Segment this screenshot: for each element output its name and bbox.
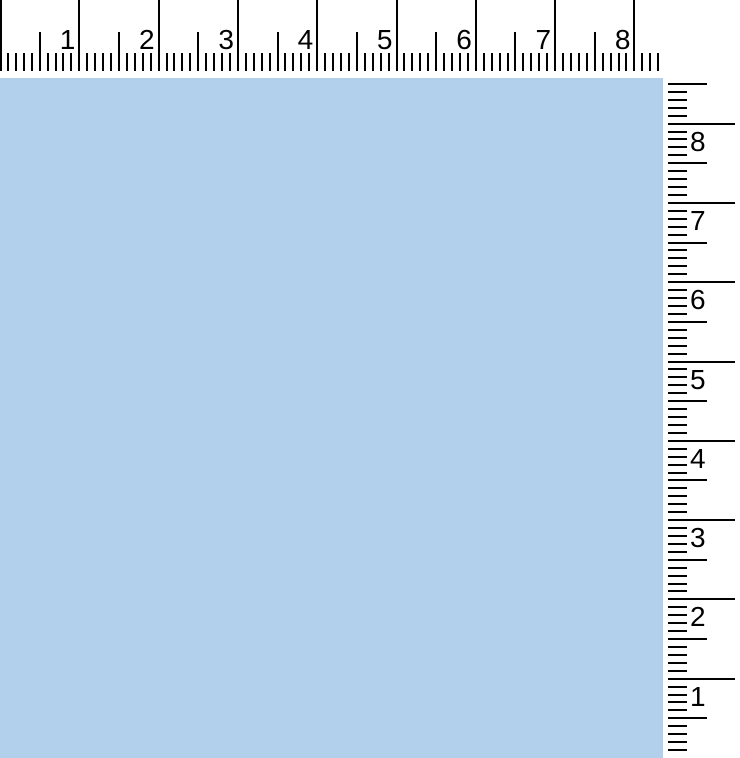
inch-tick-mark [668, 440, 735, 442]
minor-tick-mark [134, 53, 136, 71]
minor-tick-mark [55, 53, 57, 71]
minor-tick-mark [110, 53, 112, 71]
minor-tick-mark [530, 53, 532, 71]
minor-tick-mark [668, 472, 687, 474]
minor-tick-mark [419, 53, 421, 71]
minor-tick-mark [668, 99, 687, 101]
minor-tick-mark [668, 670, 687, 672]
minor-tick-mark [668, 511, 687, 513]
horizontal-ruler-number: 1 [60, 26, 76, 54]
minor-tick-mark [546, 53, 548, 71]
minor-tick-mark [459, 53, 461, 71]
inch-tick-mark [668, 361, 735, 363]
minor-tick-mark [668, 368, 687, 370]
minor-tick-mark [7, 53, 9, 71]
minor-tick-mark [668, 614, 687, 616]
minor-tick-mark [181, 53, 183, 71]
canvas-area[interactable] [0, 78, 663, 758]
vertical-ruler[interactable]: 12345678 [663, 78, 740, 758]
minor-tick-mark [15, 53, 17, 71]
inch-tick-mark [237, 0, 239, 71]
vertical-ruler-number: 5 [690, 366, 706, 394]
half-tick-mark [668, 638, 707, 640]
minor-tick-mark [150, 53, 152, 71]
minor-tick-mark [284, 53, 286, 71]
minor-tick-mark [443, 53, 445, 71]
minor-tick-mark [380, 53, 382, 71]
minor-tick-mark [668, 353, 687, 355]
minor-tick-mark [668, 741, 687, 743]
minor-tick-mark [348, 53, 350, 71]
vertical-ruler-number: 7 [690, 207, 706, 235]
minor-tick-mark [668, 701, 687, 703]
half-tick-mark [668, 321, 707, 323]
minor-tick-mark [649, 53, 651, 71]
minor-tick-mark [668, 376, 687, 378]
minor-tick-mark [668, 416, 687, 418]
minor-tick-mark [668, 733, 687, 735]
minor-tick-mark [668, 535, 687, 537]
vertical-ruler-number: 1 [690, 683, 706, 711]
minor-tick-mark [245, 53, 247, 71]
minor-tick-mark [324, 53, 326, 71]
inch-tick-mark [633, 0, 635, 71]
horizontal-ruler-number: 3 [218, 26, 234, 54]
minor-tick-mark [166, 53, 168, 71]
minor-tick-mark [668, 337, 687, 339]
minor-tick-mark [668, 543, 687, 545]
minor-tick-mark [62, 53, 64, 71]
minor-tick-mark [300, 53, 302, 71]
minor-tick-mark [668, 567, 687, 569]
minor-tick-mark [668, 249, 687, 251]
minor-tick-mark [411, 53, 413, 71]
minor-tick-mark [668, 432, 687, 434]
minor-tick-mark [668, 749, 687, 751]
minor-tick-mark [538, 53, 540, 71]
minor-tick-mark [491, 53, 493, 71]
minor-tick-mark [668, 313, 687, 315]
minor-tick-mark [668, 154, 687, 156]
minor-tick-mark [570, 53, 572, 71]
inch-tick-mark [668, 202, 735, 204]
minor-tick-mark [102, 53, 104, 71]
minor-tick-mark [668, 210, 687, 212]
minor-tick-mark [668, 107, 687, 109]
minor-tick-mark [668, 226, 687, 228]
minor-tick-mark [668, 487, 687, 489]
minor-tick-mark [94, 53, 96, 71]
minor-tick-mark [668, 218, 687, 220]
minor-tick-mark [668, 575, 687, 577]
half-tick-mark [277, 32, 279, 71]
minor-tick-mark [86, 53, 88, 71]
minor-tick-mark [668, 464, 687, 466]
minor-tick-mark [189, 53, 191, 71]
horizontal-ruler-number: 5 [377, 26, 393, 54]
minor-tick-mark [668, 448, 687, 450]
half-tick-mark [594, 32, 596, 71]
minor-tick-mark [364, 53, 366, 71]
half-tick-mark [668, 400, 707, 402]
minor-tick-mark [668, 384, 687, 386]
minor-tick-mark [668, 686, 687, 688]
minor-tick-mark [668, 289, 687, 291]
minor-tick-mark [142, 53, 144, 71]
horizontal-ruler-number: 2 [139, 26, 155, 54]
minor-tick-mark [292, 53, 294, 71]
horizontal-ruler[interactable]: 12345678 [0, 0, 740, 78]
half-tick-mark [668, 479, 707, 481]
minor-tick-mark [668, 694, 687, 696]
minor-tick-mark [70, 53, 72, 71]
vertical-ruler-number: 8 [690, 128, 706, 156]
minor-tick-mark [668, 590, 687, 592]
minor-tick-mark [668, 146, 687, 148]
horizontal-ruler-number: 7 [536, 26, 552, 54]
half-tick-mark [435, 32, 437, 71]
minor-tick-mark [668, 709, 687, 711]
minor-tick-mark [173, 53, 175, 71]
minor-tick-mark [340, 53, 342, 71]
vertical-ruler-number: 6 [690, 286, 706, 314]
minor-tick-mark [483, 53, 485, 71]
horizontal-ruler-number: 6 [456, 26, 472, 54]
minor-tick-mark [269, 53, 271, 71]
minor-tick-mark [126, 53, 128, 71]
minor-tick-mark [668, 329, 687, 331]
minor-tick-mark [388, 53, 390, 71]
minor-tick-mark [668, 456, 687, 458]
minor-tick-mark [610, 53, 612, 71]
half-tick-mark [668, 162, 707, 164]
minor-tick-mark [562, 53, 564, 71]
half-tick-mark [668, 717, 707, 719]
minor-tick-mark [668, 297, 687, 299]
minor-tick-mark [261, 53, 263, 71]
vertical-ruler-number: 2 [690, 603, 706, 631]
minor-tick-mark [668, 170, 687, 172]
inch-tick-mark [668, 281, 735, 283]
minor-tick-mark [625, 53, 627, 71]
minor-tick-mark [668, 91, 687, 93]
minor-tick-mark [668, 606, 687, 608]
minor-tick-mark [668, 527, 687, 529]
minor-tick-mark [372, 53, 374, 71]
horizontal-ruler-number: 4 [298, 26, 314, 54]
inch-tick-mark [554, 0, 556, 71]
minor-tick-mark [657, 53, 659, 71]
minor-tick-mark [213, 53, 215, 71]
minor-tick-mark [507, 53, 509, 71]
minor-tick-mark [602, 53, 604, 71]
minor-tick-mark [467, 53, 469, 71]
minor-tick-mark [23, 53, 25, 71]
minor-tick-mark [668, 265, 687, 267]
minor-tick-mark [668, 194, 687, 196]
minor-tick-mark [253, 53, 255, 71]
minor-tick-mark [668, 551, 687, 553]
minor-tick-mark [451, 53, 453, 71]
minor-tick-mark [641, 53, 643, 71]
minor-tick-mark [668, 257, 687, 259]
minor-tick-mark [205, 53, 207, 71]
inch-tick-mark [316, 0, 318, 71]
minor-tick-mark [668, 138, 687, 140]
minor-tick-mark [668, 583, 687, 585]
half-tick-mark [118, 32, 120, 71]
minor-tick-mark [668, 115, 687, 117]
half-tick-mark [39, 32, 41, 71]
half-tick-mark [197, 32, 199, 71]
inch-tick-mark [158, 0, 160, 71]
vertical-ruler-number: 3 [690, 524, 706, 552]
ruler-app-window: 12345678 12345678 [0, 0, 740, 758]
minor-tick-mark [668, 424, 687, 426]
minor-tick-mark [668, 273, 687, 275]
minor-tick-mark [668, 408, 687, 410]
minor-tick-mark [668, 662, 687, 664]
minor-tick-mark [229, 53, 231, 71]
minor-tick-mark [668, 234, 687, 236]
vertical-ruler-number: 4 [690, 445, 706, 473]
minor-tick-mark [578, 53, 580, 71]
minor-tick-mark [668, 345, 687, 347]
half-tick-mark [356, 32, 358, 71]
minor-tick-mark [586, 53, 588, 71]
minor-tick-mark [31, 53, 33, 71]
minor-tick-mark [522, 53, 524, 71]
minor-tick-mark [308, 53, 310, 71]
inch-tick-mark [78, 0, 80, 71]
minor-tick-mark [668, 503, 687, 505]
minor-tick-mark [668, 654, 687, 656]
inch-tick-mark [475, 0, 477, 71]
minor-tick-mark [221, 53, 223, 71]
minor-tick-mark [668, 630, 687, 632]
minor-tick-mark [668, 646, 687, 648]
minor-tick-mark [668, 495, 687, 497]
minor-tick-mark [668, 392, 687, 394]
minor-tick-mark [403, 53, 405, 71]
half-tick-mark [514, 32, 516, 71]
half-tick-mark [668, 559, 707, 561]
minor-tick-mark [427, 53, 429, 71]
minor-tick-mark [668, 622, 687, 624]
minor-tick-mark [618, 53, 620, 71]
inch-tick-mark [668, 123, 735, 125]
ruler-corner [663, 0, 740, 78]
inch-tick-mark [0, 0, 2, 71]
inch-tick-mark [668, 598, 735, 600]
half-tick-mark [668, 83, 707, 85]
horizontal-ruler-number: 8 [615, 26, 631, 54]
inch-tick-mark [668, 519, 735, 521]
minor-tick-mark [668, 178, 687, 180]
minor-tick-mark [499, 53, 501, 71]
minor-tick-mark [668, 186, 687, 188]
minor-tick-mark [668, 725, 687, 727]
minor-tick-mark [332, 53, 334, 71]
half-tick-mark [668, 242, 707, 244]
inch-tick-mark [396, 0, 398, 71]
minor-tick-mark [47, 53, 49, 71]
minor-tick-mark [668, 131, 687, 133]
inch-tick-mark [668, 678, 735, 680]
minor-tick-mark [668, 305, 687, 307]
